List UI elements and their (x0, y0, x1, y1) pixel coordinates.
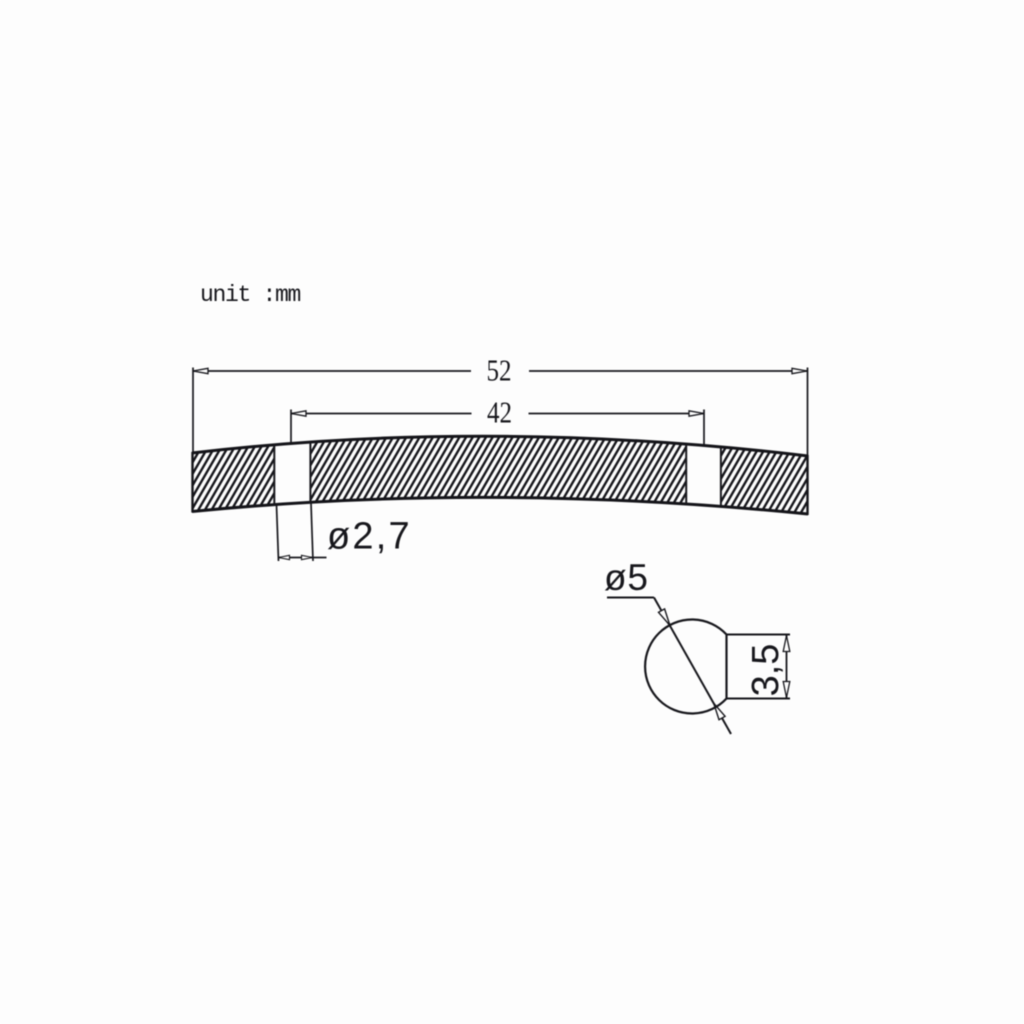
svg-text:42: 42 (487, 395, 512, 430)
svg-text:ø5: ø5 (604, 557, 649, 598)
svg-text:unit :mm: unit :mm (200, 282, 301, 308)
svg-text:3,5: 3,5 (745, 644, 787, 697)
svg-text:52: 52 (487, 353, 512, 388)
svg-text:ø2,7: ø2,7 (327, 516, 412, 558)
